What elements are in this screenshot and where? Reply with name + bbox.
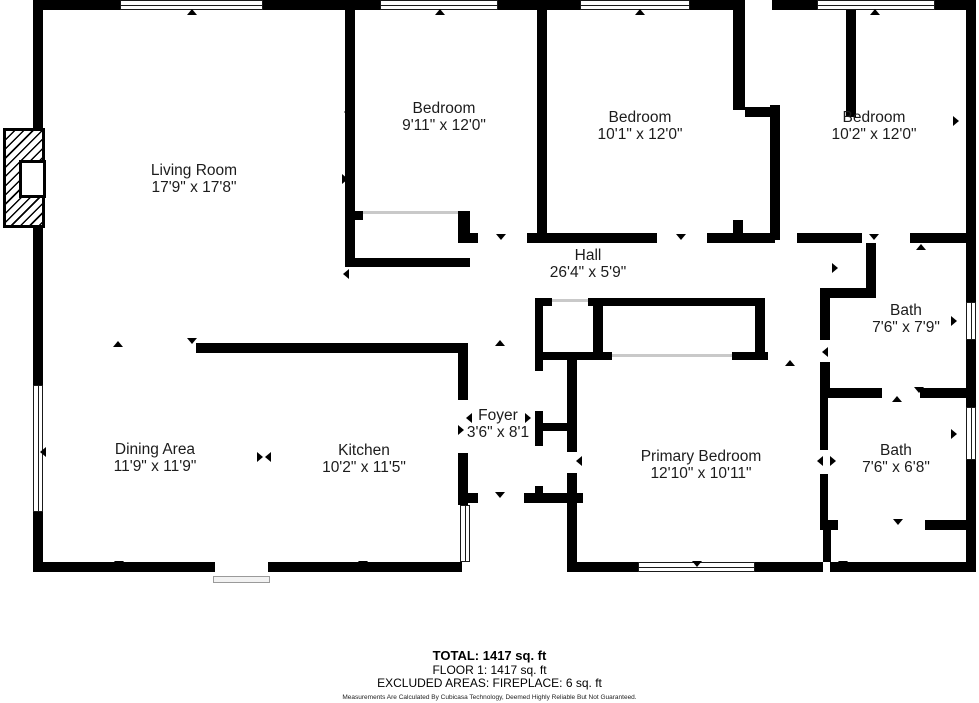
door-swing-marker	[870, 9, 880, 15]
door-swing-marker	[344, 107, 350, 117]
window-pane-line	[465, 506, 466, 561]
wall	[755, 298, 765, 360]
room-label-bedroom-3: Bedroom10'2" x 12'0"	[831, 109, 916, 143]
wall	[33, 0, 120, 10]
door-swing-marker	[676, 234, 686, 240]
floor-plan: TOTAL: 1417 sq. ft FLOOR 1: 1417 sq. ft …	[0, 0, 979, 703]
wall	[33, 562, 215, 572]
wall	[537, 10, 547, 233]
wall	[772, 0, 817, 10]
door-swing-marker	[257, 452, 263, 462]
room-name: Primary Bedroom	[641, 448, 762, 465]
door-swing-marker	[265, 452, 271, 462]
wall	[745, 107, 772, 117]
closet-door-line	[363, 211, 458, 214]
room-label-primary-bedroom: Primary Bedroom12'10" x 10'11"	[641, 448, 762, 482]
room-dimensions: 26'4" x 5'9"	[550, 264, 626, 281]
door-swing-marker	[113, 341, 123, 347]
room-name: Bedroom	[402, 100, 486, 117]
wall	[925, 520, 976, 530]
door-swing-marker	[435, 9, 445, 15]
window-pane-line	[818, 5, 934, 6]
wall	[458, 211, 470, 243]
wall	[820, 388, 882, 398]
wall	[33, 228, 43, 385]
room-label-bedroom-2: Bedroom10'1" x 12'0"	[597, 109, 682, 143]
wall	[570, 562, 638, 572]
window-pane-line	[581, 5, 689, 6]
door-swing-marker	[951, 316, 957, 326]
door-swing-marker	[951, 429, 957, 439]
wall	[348, 211, 363, 220]
window-pane-line	[971, 408, 972, 459]
room-dimensions: 7'6" x 6'8"	[862, 459, 930, 476]
disclaimer-text: Measurements Are Calculated By Cubicasa …	[0, 694, 979, 701]
door-swing-marker	[785, 360, 795, 366]
wall	[910, 233, 976, 243]
room-name: Hall	[550, 247, 626, 264]
wall	[690, 0, 745, 10]
wall	[543, 352, 612, 360]
room-name: Dining Area	[114, 441, 197, 458]
closet-door-line	[612, 354, 732, 357]
wall	[543, 298, 552, 306]
wall	[458, 343, 468, 400]
room-dimensions: 11'9" x 11'9"	[114, 458, 197, 475]
wall	[345, 258, 470, 267]
wall	[263, 0, 352, 10]
wall	[470, 233, 478, 243]
wall	[846, 233, 862, 243]
door-swing-marker	[892, 396, 902, 402]
wall	[732, 352, 768, 360]
door-swing-marker	[893, 519, 903, 525]
room-label-hall: Hall26'4" x 5'9"	[550, 247, 626, 281]
wall	[567, 473, 577, 572]
door-swing-marker	[187, 338, 197, 344]
wall	[524, 493, 583, 503]
window	[966, 407, 976, 460]
wall	[820, 298, 830, 340]
door-swing-marker	[692, 561, 702, 567]
wall	[588, 298, 765, 306]
wall	[33, 10, 43, 128]
wall	[820, 362, 830, 388]
wall	[707, 233, 775, 243]
door-swing-marker	[495, 340, 505, 346]
door-swing-marker	[830, 456, 836, 466]
wall	[462, 493, 478, 503]
window-pane-line	[121, 5, 262, 6]
fireplace-firebox	[19, 160, 46, 198]
window	[460, 505, 470, 562]
wall	[966, 0, 976, 302]
wall	[770, 105, 780, 240]
excluded-areas-text: EXCLUDED AREAS: FIREPLACE: 6 sq. ft	[0, 676, 979, 690]
room-name: Kitchen	[322, 442, 406, 459]
room-label-foyer: Foyer3'6" x 8'1	[467, 407, 529, 441]
door-swing-marker	[817, 456, 823, 466]
wall	[966, 460, 976, 572]
wall	[593, 306, 603, 357]
wall	[733, 220, 743, 233]
window-pane-line	[38, 386, 39, 511]
room-name: Bedroom	[597, 109, 682, 126]
door-swing-marker	[187, 9, 197, 15]
wall	[820, 288, 876, 298]
wall	[820, 520, 838, 530]
wall	[546, 0, 580, 10]
door-swing-marker	[358, 561, 368, 567]
room-name: Foyer	[467, 407, 529, 424]
wall	[733, 10, 745, 110]
room-dimensions: 10'2" x 12'0"	[831, 126, 916, 143]
wall	[567, 352, 577, 452]
wall	[920, 388, 976, 398]
door-swing-marker	[916, 244, 926, 250]
wall	[352, 0, 380, 10]
door-swing-marker	[496, 234, 506, 240]
wall	[846, 10, 856, 117]
room-label-bath-2: Bath7'6" x 6'8"	[862, 442, 930, 476]
wall	[498, 0, 546, 10]
wall	[755, 562, 823, 572]
door-swing-marker	[114, 561, 124, 567]
door-swing-marker	[869, 234, 879, 240]
room-label-dining-area: Dining Area11'9" x 11'9"	[114, 441, 197, 475]
room-label-bath-1: Bath7'6" x 7'9"	[872, 302, 940, 336]
room-label-bedroom-1: Bedroom9'11" x 12'0"	[402, 100, 486, 134]
room-label-kitchen: Kitchen10'2" x 11'5"	[322, 442, 406, 476]
room-name: Living Room	[151, 162, 237, 179]
door-swing-marker	[458, 425, 464, 435]
window-pane-line	[639, 567, 754, 568]
door-swing-marker	[342, 174, 348, 184]
room-dimensions: 12'10" x 10'11"	[641, 465, 762, 482]
door-swing-marker	[40, 447, 46, 457]
room-label-living-room: Living Room17'9" x 17'8"	[151, 162, 237, 196]
door-swing-marker	[914, 387, 924, 393]
wall	[196, 343, 467, 353]
door-swing-marker	[953, 116, 959, 126]
door-swing-marker	[635, 9, 645, 15]
wall	[535, 298, 543, 371]
room-name: Bedroom	[831, 109, 916, 126]
room-dimensions: 10'1" x 12'0"	[597, 126, 682, 143]
wall	[543, 423, 567, 431]
wall	[820, 398, 828, 450]
door-swing-marker	[343, 269, 349, 279]
room-name: Bath	[862, 442, 930, 459]
room-dimensions: 10'2" x 11'5"	[322, 459, 406, 476]
room-dimensions: 9'11" x 12'0"	[402, 117, 486, 134]
wall	[820, 474, 828, 520]
wall	[535, 411, 543, 446]
total-area-text: TOTAL: 1417 sq. ft	[0, 648, 979, 663]
door-swing-marker	[838, 561, 848, 567]
door-swing-marker	[576, 456, 582, 466]
entry-step	[213, 576, 270, 583]
door-swing-marker	[495, 492, 505, 498]
door-swing-marker	[832, 263, 838, 273]
room-dimensions: 17'9" x 17'8"	[151, 179, 237, 196]
floor-area-text: FLOOR 1: 1417 sq. ft	[0, 663, 979, 677]
window	[966, 302, 976, 340]
wall	[527, 233, 657, 243]
window-pane-line	[381, 5, 497, 6]
wall	[830, 562, 976, 572]
room-dimensions: 7'6" x 7'9"	[872, 319, 940, 336]
room-dimensions: 3'6" x 8'1	[467, 424, 529, 441]
wall	[823, 530, 831, 562]
closet-door-line	[552, 299, 588, 302]
window-pane-line	[971, 303, 972, 339]
door-swing-marker	[822, 347, 828, 357]
wall	[345, 10, 355, 267]
room-name: Bath	[872, 302, 940, 319]
